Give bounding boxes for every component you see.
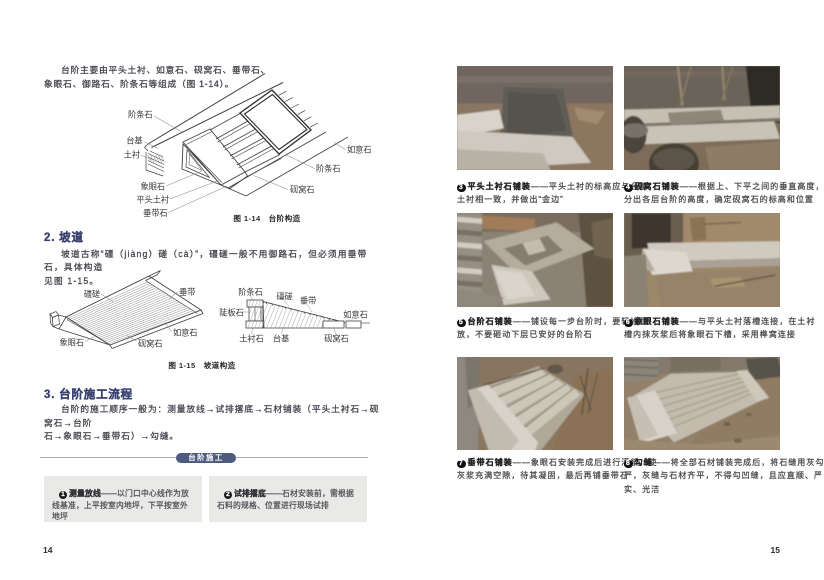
svg-text:垂带: 垂带: [179, 287, 195, 297]
svg-text:阶条石: 阶条石: [238, 287, 262, 297]
svg-text:垂带: 垂带: [300, 296, 316, 306]
svg-text:砚窝石: 砚窝石: [324, 334, 348, 344]
svg-text:土衬石: 土衬石: [239, 334, 263, 344]
svg-text:陡板石: 陡板石: [219, 308, 243, 318]
svg-text:台基: 台基: [273, 334, 290, 344]
svg-text:象眼石: 象眼石: [60, 338, 84, 348]
svg-text:礓磋: 礓磋: [84, 289, 100, 299]
svg-text:如意石: 如意石: [173, 328, 197, 338]
svg-text:如意石: 如意石: [343, 310, 367, 320]
svg-text:礓磋: 礓磋: [276, 292, 292, 302]
svg-text:砚窝石: 砚窝石: [138, 339, 162, 349]
